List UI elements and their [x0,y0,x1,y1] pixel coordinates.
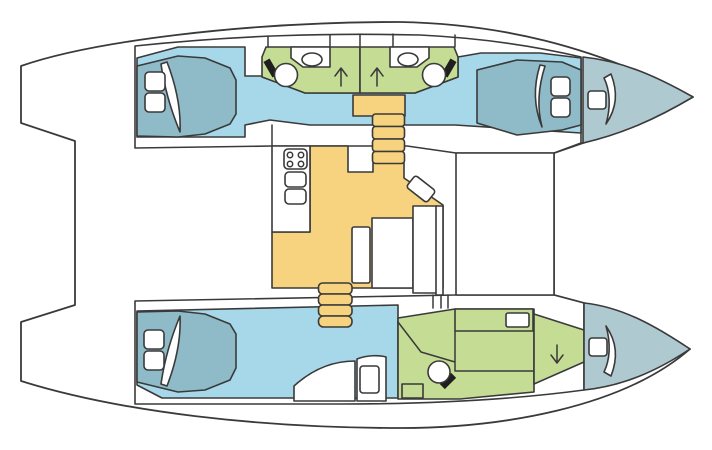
stair-landing [353,95,405,116]
sink-icon [506,313,529,327]
stair-step [319,316,353,327]
starboard-companionway [319,283,353,327]
pillow-icon [144,351,164,370]
settee [413,206,437,293]
seat-cushion [360,366,379,393]
pillow-icon [551,98,570,117]
sink-icon [302,53,322,66]
settee-back [436,206,443,295]
stair-step [373,114,405,127]
bow-lockers [583,57,693,390]
sink-icon [398,53,418,66]
galley-sink [285,189,306,204]
stair-step [373,152,405,164]
starboard-hull [137,305,584,401]
galley-sink [285,172,306,187]
side-seat [352,227,370,283]
stair-step [319,305,353,316]
stair-step [373,127,405,140]
shower-seat [402,384,423,398]
bow-hatch-icon [588,91,606,109]
pillow-icon [145,72,165,91]
pillow-icon [551,77,570,96]
pillow-icon [144,330,164,349]
stove-icon [284,149,307,169]
stair-step [373,139,405,152]
stair-step [319,283,353,294]
pillow-icon [145,93,165,112]
foredeck-panel [456,153,554,295]
port-hull [137,47,581,137]
saloon-table [372,218,413,288]
bow-hatch-icon [589,338,607,356]
stair-step [319,294,353,305]
catamaran-floor-plan [0,0,712,450]
